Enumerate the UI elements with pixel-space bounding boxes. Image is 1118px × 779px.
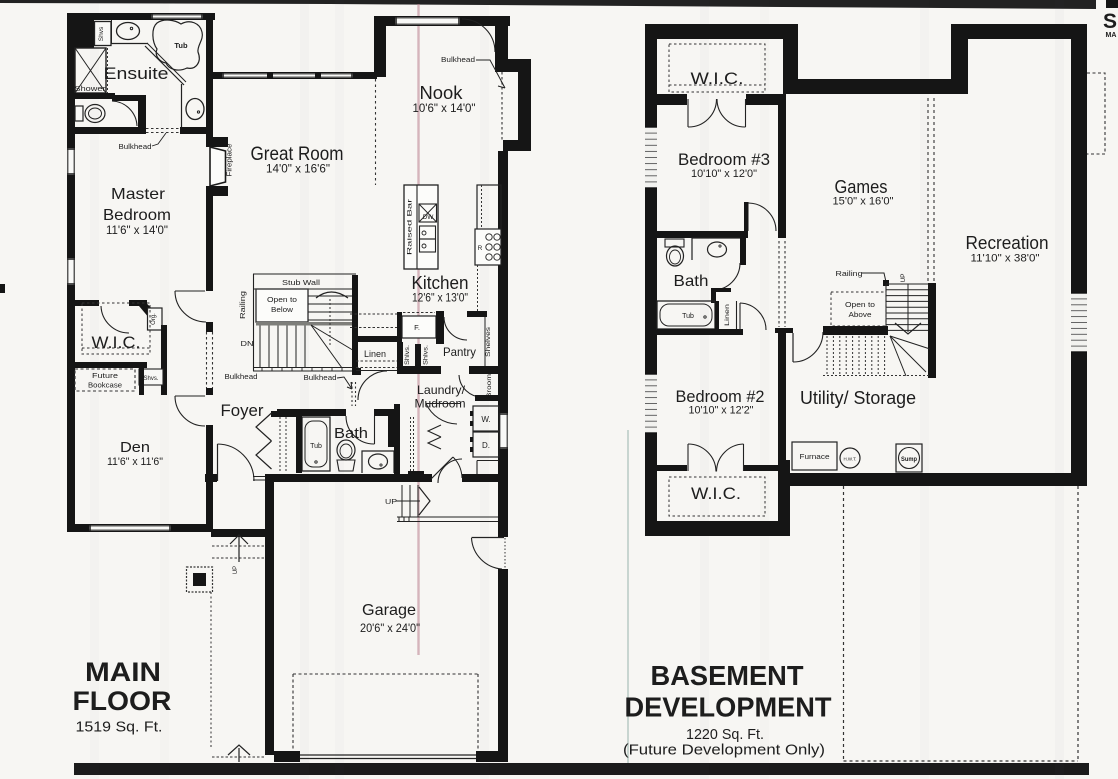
svg-text:14'0" x 16'6": 14'0" x 16'6" <box>266 162 330 176</box>
svg-text:F.: F. <box>414 323 420 332</box>
svg-text:Org.: Org. <box>151 313 157 325</box>
svg-text:R: R <box>478 245 483 252</box>
svg-text:UP: UP <box>233 764 239 772</box>
svg-text:DEVELOPMENT: DEVELOPMENT <box>625 692 832 723</box>
svg-text:Bedroom #2: Bedroom #2 <box>676 387 765 406</box>
svg-text:Laundry/: Laundry/ <box>417 383 466 397</box>
svg-text:Railing: Railing <box>836 269 863 278</box>
svg-text:W.: W. <box>481 415 490 424</box>
svg-text:Bookcase: Bookcase <box>88 381 122 390</box>
svg-text:Shvs: Shvs <box>98 26 105 41</box>
svg-text:Shvs.: Shvs. <box>143 376 158 382</box>
svg-text:Above: Above <box>849 310 872 319</box>
svg-text:Bath: Bath <box>334 425 368 442</box>
svg-text:W.I.C.: W.I.C. <box>691 484 741 503</box>
svg-text:W.I.C.: W.I.C. <box>691 69 744 88</box>
svg-text:Bulkhead: Bulkhead <box>119 142 152 151</box>
svg-text:Garage: Garage <box>362 602 416 619</box>
svg-text:Open to: Open to <box>845 300 875 309</box>
svg-text:UP: UP <box>385 497 397 506</box>
svg-text:Linen: Linen <box>724 303 731 326</box>
svg-text:Below: Below <box>271 305 294 314</box>
svg-text:Shelves: Shelves <box>485 326 492 357</box>
svg-text:W.I.C.: W.I.C. <box>92 333 141 352</box>
svg-text:1220 Sq. Ft.: 1220 Sq. Ft. <box>686 726 764 743</box>
svg-text:Ensuite: Ensuite <box>104 64 169 83</box>
svg-text:Bulkhead: Bulkhead <box>304 373 337 382</box>
svg-text:Bulkhead: Bulkhead <box>441 55 475 64</box>
svg-text:Future: Future <box>92 371 118 380</box>
svg-text:Pantry: Pantry <box>443 345 476 359</box>
svg-text:1519 Sq. Ft.: 1519 Sq. Ft. <box>76 719 163 736</box>
svg-text:DN: DN <box>241 339 254 348</box>
svg-text:Furnace: Furnace <box>800 454 830 461</box>
svg-text:Tub: Tub <box>682 313 694 320</box>
svg-text:Stub Wall: Stub Wall <box>282 278 320 287</box>
svg-text:10'10" x 12'2": 10'10" x 12'2" <box>689 405 754 417</box>
svg-text:11'10" x 38'0": 11'10" x 38'0" <box>971 253 1040 265</box>
svg-text:20'6" x 24'0": 20'6" x 24'0" <box>360 621 420 635</box>
svg-text:MAIN: MAIN <box>85 657 161 687</box>
svg-text:UP: UP <box>900 273 907 282</box>
svg-text:12'6" x 13'0": 12'6" x 13'0" <box>412 291 468 305</box>
svg-text:(Future Development Only): (Future Development Only) <box>623 742 825 759</box>
svg-text:Nook: Nook <box>420 83 464 103</box>
svg-text:Recreation: Recreation <box>966 233 1049 253</box>
svg-text:BASEMENT: BASEMENT <box>651 660 804 691</box>
svg-text:Open to: Open to <box>267 295 297 304</box>
svg-text:Broom: Broom <box>486 374 493 398</box>
svg-text:Bedroom: Bedroom <box>103 207 171 224</box>
svg-text:Shlvs.: Shlvs. <box>424 345 430 365</box>
svg-text:10'6" x 14'0": 10'6" x 14'0" <box>413 101 476 115</box>
svg-text:11'6" x 14'0": 11'6" x 14'0" <box>106 223 168 237</box>
svg-text:Den: Den <box>120 439 150 456</box>
svg-text:H.W.T.: H.W.T. <box>844 457 857 462</box>
svg-text:D.: D. <box>482 441 490 450</box>
svg-text:Bulkhead: Bulkhead <box>225 372 258 381</box>
svg-text:15'0" x 16'0": 15'0" x 16'0" <box>833 196 894 208</box>
svg-text:Linen: Linen <box>364 349 386 360</box>
svg-text:Master: Master <box>111 186 166 203</box>
svg-text:S: S <box>1103 10 1117 33</box>
svg-text:Tub: Tub <box>310 443 322 450</box>
svg-text:11'6" x 11'6": 11'6" x 11'6" <box>107 456 163 468</box>
svg-text:10'10" x 12'0": 10'10" x 12'0" <box>691 168 757 180</box>
svg-text:UP: UP <box>233 566 239 574</box>
svg-text:MA: MA <box>1106 32 1117 39</box>
svg-text:Railing: Railing <box>240 291 247 319</box>
svg-text:Fireplace: Fireplace <box>227 143 234 176</box>
svg-text:Bedroom #3: Bedroom #3 <box>678 150 770 169</box>
svg-text:Shower: Shower <box>75 84 107 93</box>
svg-text:Sump: Sump <box>901 457 917 463</box>
svg-text:Raised Bar: Raised Bar <box>407 198 414 255</box>
svg-text:Games: Games <box>835 177 888 197</box>
svg-text:DW: DW <box>423 214 435 221</box>
svg-text:Tub: Tub <box>174 41 188 50</box>
svg-text:Bath: Bath <box>674 273 709 290</box>
svg-text:FLOOR: FLOOR <box>73 686 172 716</box>
svg-text:Foyer: Foyer <box>221 401 264 420</box>
svg-text:Utility/ Storage: Utility/ Storage <box>800 388 916 408</box>
svg-text:Shlvs.: Shlvs. <box>405 345 411 365</box>
